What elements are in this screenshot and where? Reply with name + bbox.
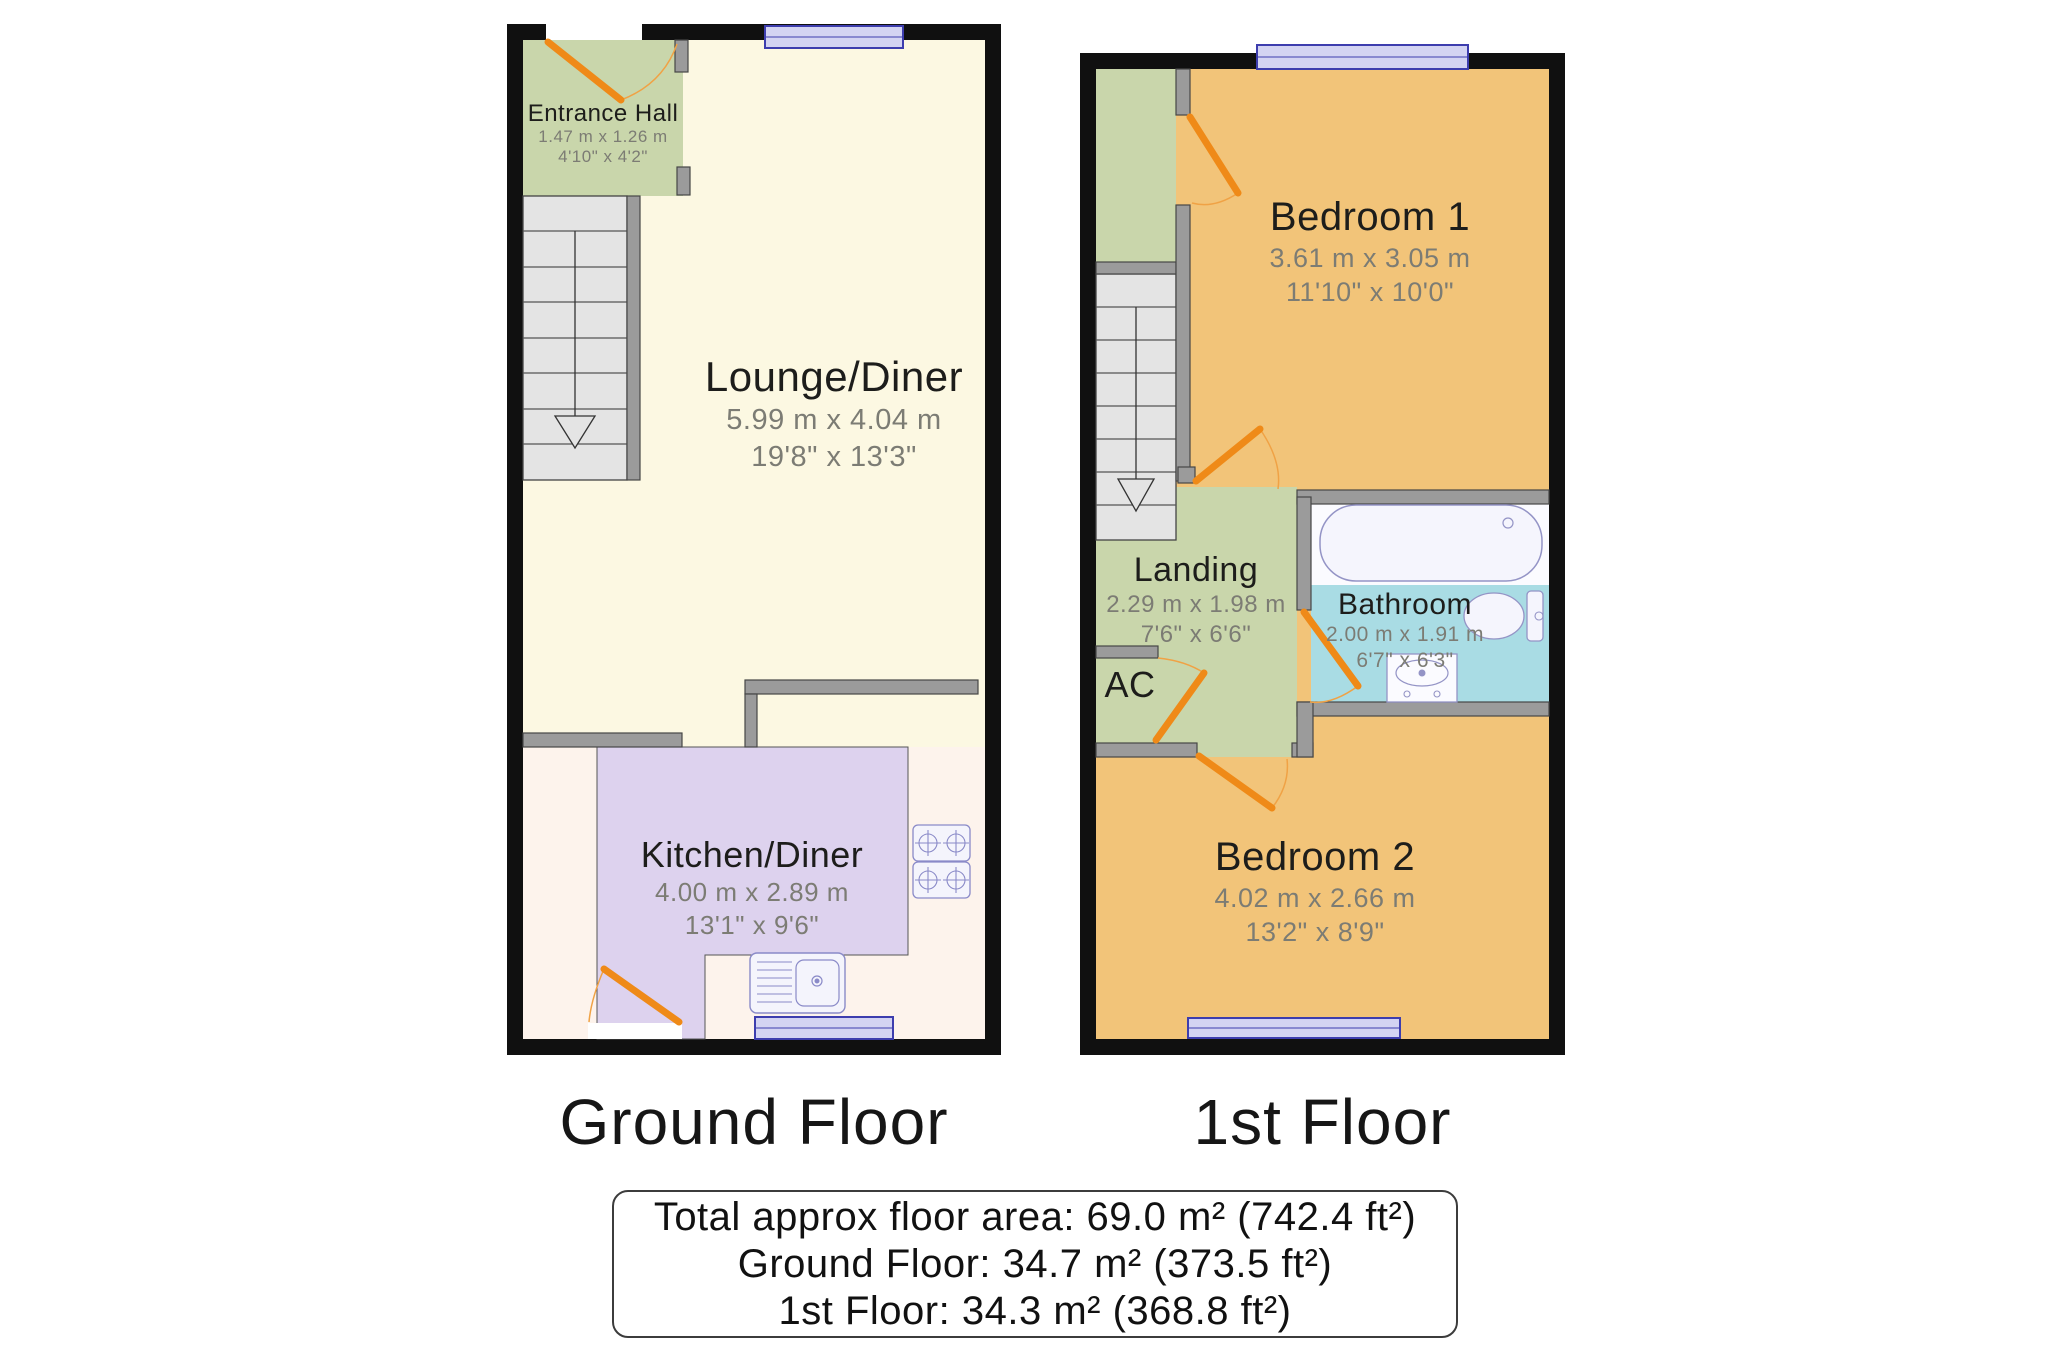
total-floor-area: Total approx floor area: 69.0 m² (742.4 … [614,1194,1456,1241]
bathtub-icon [1320,505,1542,581]
ground-floor-area: Ground Floor: 34.7 m² (373.5 ft²) [614,1241,1456,1288]
entrance-hall-area [523,40,683,196]
first-floorplan-drawing [1080,53,1565,1055]
ground-floor-plan: Entrance Hall 1.47 m x 1.26 m 4'10" x 4'… [507,24,1001,1055]
hob-icon [913,825,970,898]
first-floor-plan: Bedroom 1 3.61 m x 3.05 m 11'10" x 10'0"… [1080,53,1565,1055]
first-floor-caption: 1st Floor [1080,1085,1565,1159]
floor-area-summary: Total approx floor area: 69.0 m² (742.4 … [612,1190,1458,1338]
floorplan-page: Entrance Hall 1.47 m x 1.26 m 4'10" x 4'… [0,0,2048,1364]
first-floor-area: 1st Floor: 34.3 m² (368.8 ft²) [614,1288,1456,1335]
ground-floor-caption: Ground Floor [507,1085,1001,1159]
staircase [523,196,627,480]
ground-floorplan-drawing [507,24,1001,1055]
toilet-icon [1464,591,1543,641]
sink-icon [750,953,845,1013]
basin-icon [1387,654,1457,702]
landing-top-area [1096,69,1176,262]
staircase [1096,274,1176,540]
